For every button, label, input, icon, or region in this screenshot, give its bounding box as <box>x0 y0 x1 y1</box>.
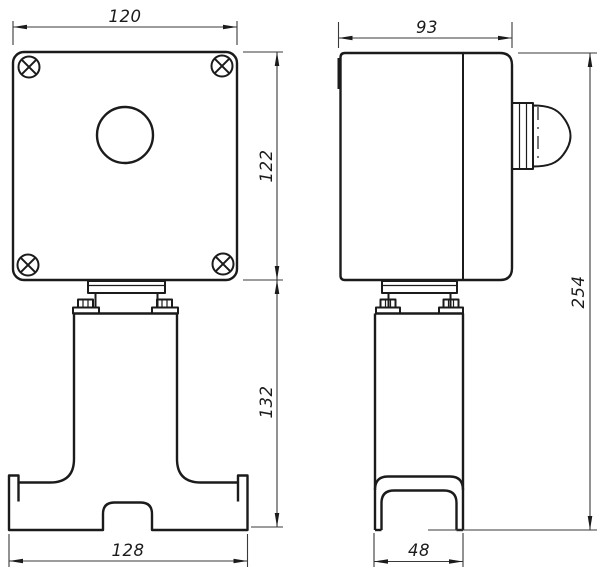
stand-column-front-right-edge <box>177 314 238 483</box>
gland-dome <box>533 106 571 167</box>
phillips-screw-top-right <box>212 56 233 77</box>
lid-lip <box>338 58 342 89</box>
side-view: 93 254 48 <box>338 18 598 567</box>
enclosure-side-outline <box>341 53 513 280</box>
dimension-base-depth: 48 <box>374 533 463 567</box>
channel-outer-bend <box>375 477 463 491</box>
dimension-label-128: 128 <box>112 541 145 560</box>
dimension-label-120: 120 <box>109 7 142 26</box>
dimension-label-48: 48 <box>408 541 430 560</box>
dimension-label-93: 93 <box>416 18 438 37</box>
stand-column-side <box>375 314 463 531</box>
dimension-base-width: 128 <box>9 534 248 567</box>
dimension-box-height: 122 <box>243 52 283 280</box>
phillips-screw-top-left <box>19 57 40 78</box>
technical-drawing-canvas: 120 122 132 128 <box>0 0 600 572</box>
cable-gland <box>512 103 571 169</box>
dimension-top-width: 120 <box>13 7 237 45</box>
dimension-label-254: 254 <box>569 276 588 309</box>
phillips-screw-bottom-left <box>18 255 39 276</box>
dimension-label-122: 122 <box>257 150 276 183</box>
drawing-sheet: 120 122 132 128 <box>0 0 600 572</box>
mounting-flange-front <box>88 281 165 307</box>
channel-inner-bend <box>382 491 457 531</box>
pushbutton-hole <box>97 107 153 163</box>
bolt-front-right <box>152 300 178 314</box>
phillips-screw-bottom-right <box>213 254 234 275</box>
dimension-top-depth: 93 <box>339 18 513 48</box>
dimension-stand-height: 132 <box>251 280 283 527</box>
stand-column-front-left-edge <box>19 314 75 483</box>
enclosure-front-outline <box>13 52 237 280</box>
front-view: 120 122 132 128 <box>9 7 283 567</box>
mounting-flange-side <box>382 281 457 307</box>
dimension-label-132: 132 <box>257 386 276 419</box>
